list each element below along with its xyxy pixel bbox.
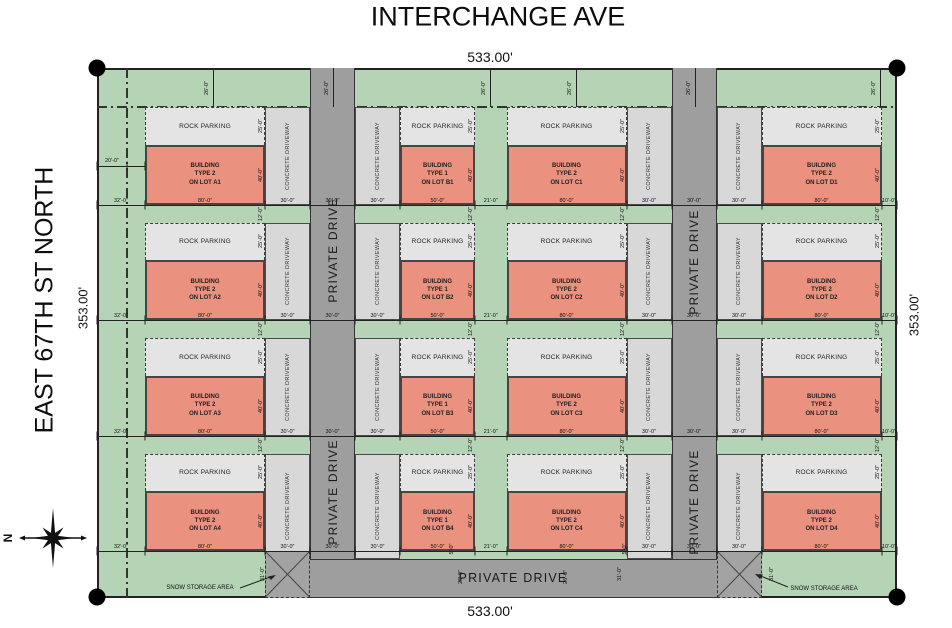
dimension-tick: [506, 200, 507, 209]
lot-parking-A3: ROCK PARKING: [145, 338, 265, 376]
dim-building-depth: 40'-0": [620, 398, 626, 412]
concrete-driveway: CONCRETE DRIVEWAY: [355, 223, 400, 321]
dim-building-depth: 40'-0": [875, 167, 881, 181]
snow-leader-west: [235, 568, 280, 592]
concrete-driveway-label: CONCRETE DRIVEWAY: [646, 353, 652, 421]
dim-building-offset: 5'-0": [449, 544, 455, 555]
dim-line-top: [880, 68, 881, 107]
concrete-driveway: CONCRETE DRIVEWAY: [627, 338, 672, 436]
dim-building-depth: 40'-0": [258, 283, 264, 297]
dim-parking-depth: 25'-0": [620, 234, 626, 248]
dimension-tick: [475, 200, 476, 209]
dim-label: 30'-0": [325, 313, 339, 319]
dim-label: 10'-0": [882, 544, 896, 550]
dim-label: 30'-0": [732, 544, 746, 550]
dim-label: 30'-0": [325, 429, 339, 435]
dimension-tick: [671, 200, 672, 209]
dimension-line: [97, 320, 897, 321]
dimension-tick: [896, 547, 897, 556]
setback-dim-line: [97, 166, 145, 167]
dimension-tick: [400, 200, 401, 209]
building-label-B3: BUILDING TYPE 1 ON LOT B3: [421, 393, 453, 417]
lot-parking-D1: ROCK PARKING: [762, 107, 882, 145]
lot-parking-C2: ROCK PARKING: [507, 223, 627, 261]
dimension-tick: [671, 316, 672, 325]
corner-monument: [889, 60, 906, 77]
concrete-driveway-label: CONCRETE DRIVEWAY: [736, 122, 742, 190]
rock-parking-label: ROCK PARKING: [179, 469, 231, 476]
building-A3: BUILDING TYPE 2 ON LOT A3: [145, 376, 265, 436]
concrete-driveway-label: CONCRETE DRIVEWAY: [736, 472, 742, 540]
dim-label: 30'-0": [732, 429, 746, 435]
private-drive-label: PRIVATE DRIVE: [459, 571, 568, 585]
dim-label: 30'-0": [280, 429, 294, 435]
rock-parking-label: ROCK PARKING: [796, 123, 848, 130]
concrete-driveway-label: CONCRETE DRIVEWAY: [285, 122, 291, 190]
dim-label: 50'-0": [430, 313, 444, 319]
dimension-tick: [400, 547, 401, 556]
dimension-line: [97, 205, 897, 206]
rock-parking-label: ROCK PARKING: [541, 469, 593, 476]
building-label-A1: BUILDING TYPE 2 ON LOT A1: [189, 162, 221, 186]
dimension-tick: [506, 431, 507, 440]
dim-building-depth: 40'-0": [620, 167, 626, 181]
dim-building-depth: 40'-0": [258, 514, 264, 528]
dimension-tick: [127, 162, 128, 171]
rock-parking-label: ROCK PARKING: [541, 354, 593, 361]
dimension-tick: [761, 316, 762, 325]
building-label-D2: BUILDING TYPE 2 ON LOT D2: [805, 278, 837, 302]
dim-label: 30'-0": [370, 198, 384, 204]
concrete-driveway-label: CONCRETE DRIVEWAY: [375, 122, 381, 190]
dim-line-top: [213, 68, 214, 107]
building-label-C4: BUILDING TYPE 2 ON LOT C4: [550, 509, 582, 533]
concrete-driveway-label: CONCRETE DRIVEWAY: [736, 237, 742, 305]
concrete-driveway: CONCRETE DRIVEWAY: [717, 223, 762, 321]
dimension-tick: [265, 547, 266, 556]
dim-label: 32'-0": [114, 544, 128, 550]
dim-label: 30'-0": [642, 429, 656, 435]
building-label-D1: BUILDING TYPE 2 ON LOT D1: [805, 162, 837, 186]
dim-label: 21'-0": [484, 198, 498, 204]
north-compass: [18, 502, 88, 574]
lot-parking-B2: ROCK PARKING: [400, 223, 475, 261]
dim-label: 80'-0": [814, 198, 828, 204]
dimension-tick: [400, 316, 401, 325]
dimension-tick: [310, 431, 311, 440]
rock-parking-label: ROCK PARKING: [796, 469, 848, 476]
building-label-B2: BUILDING TYPE 1 ON LOT B2: [421, 278, 453, 302]
lot-parking-B4: ROCK PARKING: [400, 454, 475, 492]
concrete-driveway: CONCRETE DRIVEWAY: [265, 223, 310, 321]
concrete-driveway: CONCRETE DRIVEWAY: [265, 338, 310, 436]
dim-parking-depth: 25'-0": [620, 119, 626, 133]
building-label-D3: BUILDING TYPE 2 ON LOT D3: [805, 393, 837, 417]
concrete-driveway-label: CONCRETE DRIVEWAY: [736, 353, 742, 421]
dim-parking-depth: 25'-0": [258, 350, 264, 364]
dim-label: 30'-0": [687, 429, 701, 435]
dim-label: 32'-0": [114, 429, 128, 435]
concrete-driveway-label: CONCRETE DRIVEWAY: [646, 122, 652, 190]
dim-label: 30'-0": [280, 313, 294, 319]
lot-parking-D4: ROCK PARKING: [762, 454, 882, 492]
dim-label: 21'-0": [484, 544, 498, 550]
dim-line-top: [695, 68, 696, 107]
dim-row-gap: 12'-0": [258, 322, 264, 336]
dim-label: 80'-0": [814, 429, 828, 435]
building-label-A3: BUILDING TYPE 2 ON LOT A3: [189, 393, 221, 417]
concrete-driveway-label: CONCRETE DRIVEWAY: [375, 472, 381, 540]
building-D3: BUILDING TYPE 2 ON LOT D3: [762, 376, 882, 436]
dimension-line: [97, 551, 897, 552]
snow-storage-label-west: SNOW STORAGE AREA: [166, 585, 233, 591]
rock-parking-label: ROCK PARKING: [179, 238, 231, 245]
dimension-tick: [355, 547, 356, 556]
dimension-tick: [761, 547, 762, 556]
dimension-tick: [506, 316, 507, 325]
dimension-tick: [145, 200, 146, 209]
dim-row-gap: 12'-0": [875, 437, 881, 451]
dim-label: 80'-0": [198, 429, 212, 435]
dim-left-setback: 20'-0": [105, 158, 119, 164]
dim-building-depth: 40'-0": [620, 283, 626, 297]
dimension-tick: [626, 200, 627, 209]
dim-row-gap: 12'-0": [258, 437, 264, 451]
lot-parking-D3: ROCK PARKING: [762, 338, 882, 376]
building-label-D4: BUILDING TYPE 2 ON LOT D4: [805, 509, 837, 533]
corner-monument: [889, 589, 906, 606]
dimension-tick: [626, 316, 627, 325]
dim-parking-depth: 25'-0": [258, 119, 264, 133]
concrete-driveway-label: CONCRETE DRIVEWAY: [285, 237, 291, 305]
dim-label: 30'-0": [325, 544, 339, 550]
dimension-tick: [97, 162, 98, 171]
building-C4: BUILDING TYPE 2 ON LOT C4: [507, 491, 627, 551]
building-C2: BUILDING TYPE 2 ON LOT C2: [507, 260, 627, 320]
dim-parking-depth: 25'-0": [258, 465, 264, 479]
dimension-tick: [896, 316, 897, 325]
dim-building-depth: 40'-0": [468, 514, 474, 528]
dim-line-top: [576, 68, 577, 107]
dim-label: 30'-0": [687, 198, 701, 204]
dimension-tick: [716, 431, 717, 440]
dim-building-depth: 40'-0": [258, 398, 264, 412]
dim-building-depth: 40'-0": [468, 167, 474, 181]
dim-label: 30'-0": [370, 544, 384, 550]
building-A4: BUILDING TYPE 2 ON LOT A4: [145, 491, 265, 551]
building-A1: BUILDING TYPE 2 ON LOT A1: [145, 145, 265, 205]
dimension-tick: [475, 431, 476, 440]
dim-row-gap: 12'-0": [258, 206, 264, 220]
dim-building-depth: 40'-0": [258, 167, 264, 181]
dimension-tick: [671, 431, 672, 440]
rock-parking-label: ROCK PARKING: [796, 354, 848, 361]
dim-top-strip: 26'-0": [204, 81, 210, 95]
dim-parking-depth: 25'-0": [620, 350, 626, 364]
dim-label: 30'-0": [642, 544, 656, 550]
dimension-tick: [310, 316, 311, 325]
concrete-driveway: CONCRETE DRIVEWAY: [627, 107, 672, 205]
rock-parking-label: ROCK PARKING: [541, 238, 593, 245]
dim-label: 32'-0": [114, 313, 128, 319]
dimension-tick: [506, 547, 507, 556]
rock-parking-label: ROCK PARKING: [179, 354, 231, 361]
lot-parking-C1: ROCK PARKING: [507, 107, 627, 145]
leader-arrow: [748, 570, 793, 592]
dim-label: 30'-0": [732, 313, 746, 319]
concrete-driveway-label: CONCRETE DRIVEWAY: [375, 353, 381, 421]
building-label-B4: BUILDING TYPE 1 ON LOT B4: [421, 509, 453, 533]
dim-label: 80'-0": [559, 544, 573, 550]
rock-parking-label: ROCK PARKING: [412, 469, 464, 476]
concrete-driveway: CONCRETE DRIVEWAY: [355, 338, 400, 436]
lot-parking-A1: ROCK PARKING: [145, 107, 265, 145]
dim-label: 21'-0": [484, 313, 498, 319]
concrete-driveway: CONCRETE DRIVEWAY: [627, 223, 672, 321]
concrete-driveway: CONCRETE DRIVEWAY: [265, 454, 310, 559]
dimension-tick: [97, 200, 98, 209]
rock-parking-label: ROCK PARKING: [796, 238, 848, 245]
private-drive-label: PRIVATE DRIVE: [687, 209, 701, 314]
building-label-A4: BUILDING TYPE 2 ON LOT A4: [189, 509, 221, 533]
concrete-driveway: CONCRETE DRIVEWAY: [265, 107, 310, 205]
building-label-A2: BUILDING TYPE 2 ON LOT A2: [189, 278, 221, 302]
concrete-driveway: CONCRETE DRIVEWAY: [355, 454, 400, 559]
dimension-tick: [475, 547, 476, 556]
dim-row-gap: 12'-0": [468, 206, 474, 220]
building-B2: BUILDING TYPE 1 ON LOT B2: [400, 260, 475, 320]
dimension-tick: [671, 547, 672, 556]
dim-label: 80'-0": [559, 429, 573, 435]
building-label-C2: BUILDING TYPE 2 ON LOT C2: [550, 278, 582, 302]
dim-label: 30'-0": [280, 544, 294, 550]
dimension-tick: [716, 200, 717, 209]
dimension-tick: [265, 316, 266, 325]
dimension-tick: [97, 316, 98, 325]
lot-parking-B1: ROCK PARKING: [400, 107, 475, 145]
building-D4: BUILDING TYPE 2 ON LOT D4: [762, 491, 882, 551]
building-C1: BUILDING TYPE 2 ON LOT C1: [507, 145, 627, 205]
dim-line-top: [333, 68, 334, 107]
dimension-tick: [145, 547, 146, 556]
dimension-tick: [265, 200, 266, 209]
dim-parking-depth: 25'-0": [875, 234, 881, 248]
dim-line-top: [490, 68, 491, 107]
compass-rose-icon: [18, 502, 88, 574]
building-B1: BUILDING TYPE 1 ON LOT B1: [400, 145, 475, 205]
dim-label: 30'-0": [370, 429, 384, 435]
concrete-driveway-label: CONCRETE DRIVEWAY: [646, 237, 652, 305]
private-drive-label: PRIVATE DRIVE: [326, 197, 340, 302]
dim-label: 80'-0": [198, 198, 212, 204]
dim-label: 80'-0": [198, 544, 212, 550]
dim-top-strip: 26'-0": [686, 81, 692, 95]
dim-building-depth: 40'-0": [875, 514, 881, 528]
building-D1: BUILDING TYPE 2 ON LOT D1: [762, 145, 882, 205]
lot-parking-A2: ROCK PARKING: [145, 223, 265, 261]
dim-building-depth: 40'-0": [468, 283, 474, 297]
dimension-tick: [626, 431, 627, 440]
dim-row-gap: 12'-0": [875, 322, 881, 336]
dim-parking-depth: 25'-0": [875, 350, 881, 364]
dim-parking-depth: 25'-0": [468, 350, 474, 364]
dim-parking-depth: 25'-0": [258, 234, 264, 248]
dimension-tick: [310, 547, 311, 556]
dim-label: 80'-0": [559, 198, 573, 204]
dim-building-depth: 40'-0": [620, 514, 626, 528]
plan-drawing: CONCRETE DRIVEWAYCONCRETE DRIVEWAYCONCRE…: [0, 0, 952, 628]
dimension-tick: [265, 431, 266, 440]
lot-parking-B3: ROCK PARKING: [400, 338, 475, 376]
concrete-driveway: CONCRETE DRIVEWAY: [717, 107, 762, 205]
dimension-tick: [716, 316, 717, 325]
concrete-driveway-label: CONCRETE DRIVEWAY: [646, 472, 652, 540]
dim-building-depth: 40'-0": [875, 398, 881, 412]
dim-label: 10'-0": [882, 198, 896, 204]
dim-label: 30'-0": [642, 313, 656, 319]
rock-parking-label: ROCK PARKING: [412, 238, 464, 245]
dimension-tick: [355, 431, 356, 440]
dim-row-gap: 12'-0": [620, 322, 626, 336]
dim-label: 30'-0": [280, 198, 294, 204]
lot-parking-C4: ROCK PARKING: [507, 454, 627, 492]
dim-row-gap: 12'-0": [468, 322, 474, 336]
dim-label: 80'-0": [814, 544, 828, 550]
dimension-tick: [896, 200, 897, 209]
dim-label: 80'-0": [814, 313, 828, 319]
dim-label: 21'-0": [484, 429, 498, 435]
dim-label: 30'-0": [370, 313, 384, 319]
dimension-tick: [310, 200, 311, 209]
dim-parking-depth: 25'-0": [468, 119, 474, 133]
private-drive-label: PRIVATE DRIVE: [687, 449, 701, 554]
dim-label: 80'-0": [198, 313, 212, 319]
dim-row-gap: 12'-0": [620, 206, 626, 220]
building-A2: BUILDING TYPE 2 ON LOT A2: [145, 260, 265, 320]
dim-parking-depth: 25'-0": [468, 465, 474, 479]
dimension-tick: [145, 162, 146, 171]
dim-top-strip: 26'-0": [567, 81, 573, 95]
dim-snow-depth: 31'-0": [617, 567, 623, 581]
building-B4: BUILDING TYPE 1 ON LOT B4: [400, 491, 475, 551]
dim-building-offset: 5'-0": [622, 544, 628, 555]
dimension-tick: [475, 316, 476, 325]
dimension-tick: [355, 316, 356, 325]
dimension-tick: [400, 431, 401, 440]
dimension-tick: [97, 431, 98, 440]
dim-top-strip: 26'-0": [481, 81, 487, 95]
setback-line-vertical: [126, 68, 128, 598]
corner-monument: [89, 589, 106, 606]
dimension-tick: [896, 431, 897, 440]
rock-parking-label: ROCK PARKING: [179, 123, 231, 130]
lot-parking-A4: ROCK PARKING: [145, 454, 265, 492]
rock-parking-label: ROCK PARKING: [541, 123, 593, 130]
dim-building-depth: 40'-0": [875, 283, 881, 297]
dimension-tick: [761, 200, 762, 209]
concrete-driveway: CONCRETE DRIVEWAY: [717, 338, 762, 436]
dim-row-gap: 12'-0": [468, 437, 474, 451]
dim-top-strip: 26'-0": [871, 81, 877, 95]
dimension-tick: [145, 316, 146, 325]
dim-label: 10'-0": [882, 429, 896, 435]
dim-parking-depth: 25'-0": [875, 465, 881, 479]
building-label-B1: BUILDING TYPE 1 ON LOT B1: [421, 162, 453, 186]
dim-label: 50'-0": [430, 198, 444, 204]
concrete-driveway-label: CONCRETE DRIVEWAY: [285, 472, 291, 540]
building-label-C3: BUILDING TYPE 2 ON LOT C3: [550, 393, 582, 417]
dimension-tick: [716, 547, 717, 556]
dim-parking-depth: 25'-0": [875, 119, 881, 133]
rock-parking-label: ROCK PARKING: [412, 354, 464, 361]
building-B3: BUILDING TYPE 1 ON LOT B3: [400, 376, 475, 436]
dim-label: 32'-0": [114, 198, 128, 204]
dim-label: 10'-0": [882, 313, 896, 319]
dim-label: 30'-0": [642, 198, 656, 204]
concrete-driveway: CONCRETE DRIVEWAY: [627, 454, 672, 559]
north-label: N: [1, 534, 15, 543]
dim-top-strip: 26'-0": [324, 81, 330, 95]
dim-label: 80'-0": [559, 313, 573, 319]
dim-label: 50'-0": [430, 429, 444, 435]
building-D2: BUILDING TYPE 2 ON LOT D2: [762, 260, 882, 320]
dim-label: 30'-0": [732, 198, 746, 204]
corner-monument: [89, 60, 106, 77]
dim-parking-depth: 25'-0": [468, 234, 474, 248]
dimension-line: [97, 436, 897, 437]
snow-leader-east: [748, 570, 793, 592]
lot-parking-D2: ROCK PARKING: [762, 223, 882, 261]
dimension-tick: [355, 200, 356, 209]
concrete-driveway: CONCRETE DRIVEWAY: [717, 454, 762, 559]
dim-label: 50'-0": [430, 544, 444, 550]
concrete-driveway-label: CONCRETE DRIVEWAY: [285, 353, 291, 421]
concrete-driveway-label: CONCRETE DRIVEWAY: [375, 237, 381, 305]
private-drive-label: PRIVATE DRIVE: [326, 439, 340, 544]
snow-storage-label-east: SNOW STORAGE AREA: [790, 586, 857, 592]
site-plan-sheet: INTERCHANGE AVE 533.00' 533.00' EAST 67T…: [0, 0, 952, 628]
building-C3: BUILDING TYPE 2 ON LOT C3: [507, 376, 627, 436]
building-label-C1: BUILDING TYPE 2 ON LOT C1: [550, 162, 582, 186]
dimension-tick: [145, 431, 146, 440]
dim-row-gap: 12'-0": [620, 437, 626, 451]
rock-parking-label: ROCK PARKING: [412, 123, 464, 130]
dim-parking-depth: 25'-0": [620, 465, 626, 479]
dim-row-gap: 12'-0": [875, 206, 881, 220]
dim-building-depth: 40'-0": [468, 398, 474, 412]
concrete-driveway: CONCRETE DRIVEWAY: [355, 107, 400, 205]
dimension-tick: [761, 431, 762, 440]
dimension-tick: [97, 547, 98, 556]
leader-arrow: [235, 568, 280, 592]
lot-parking-C3: ROCK PARKING: [507, 338, 627, 376]
